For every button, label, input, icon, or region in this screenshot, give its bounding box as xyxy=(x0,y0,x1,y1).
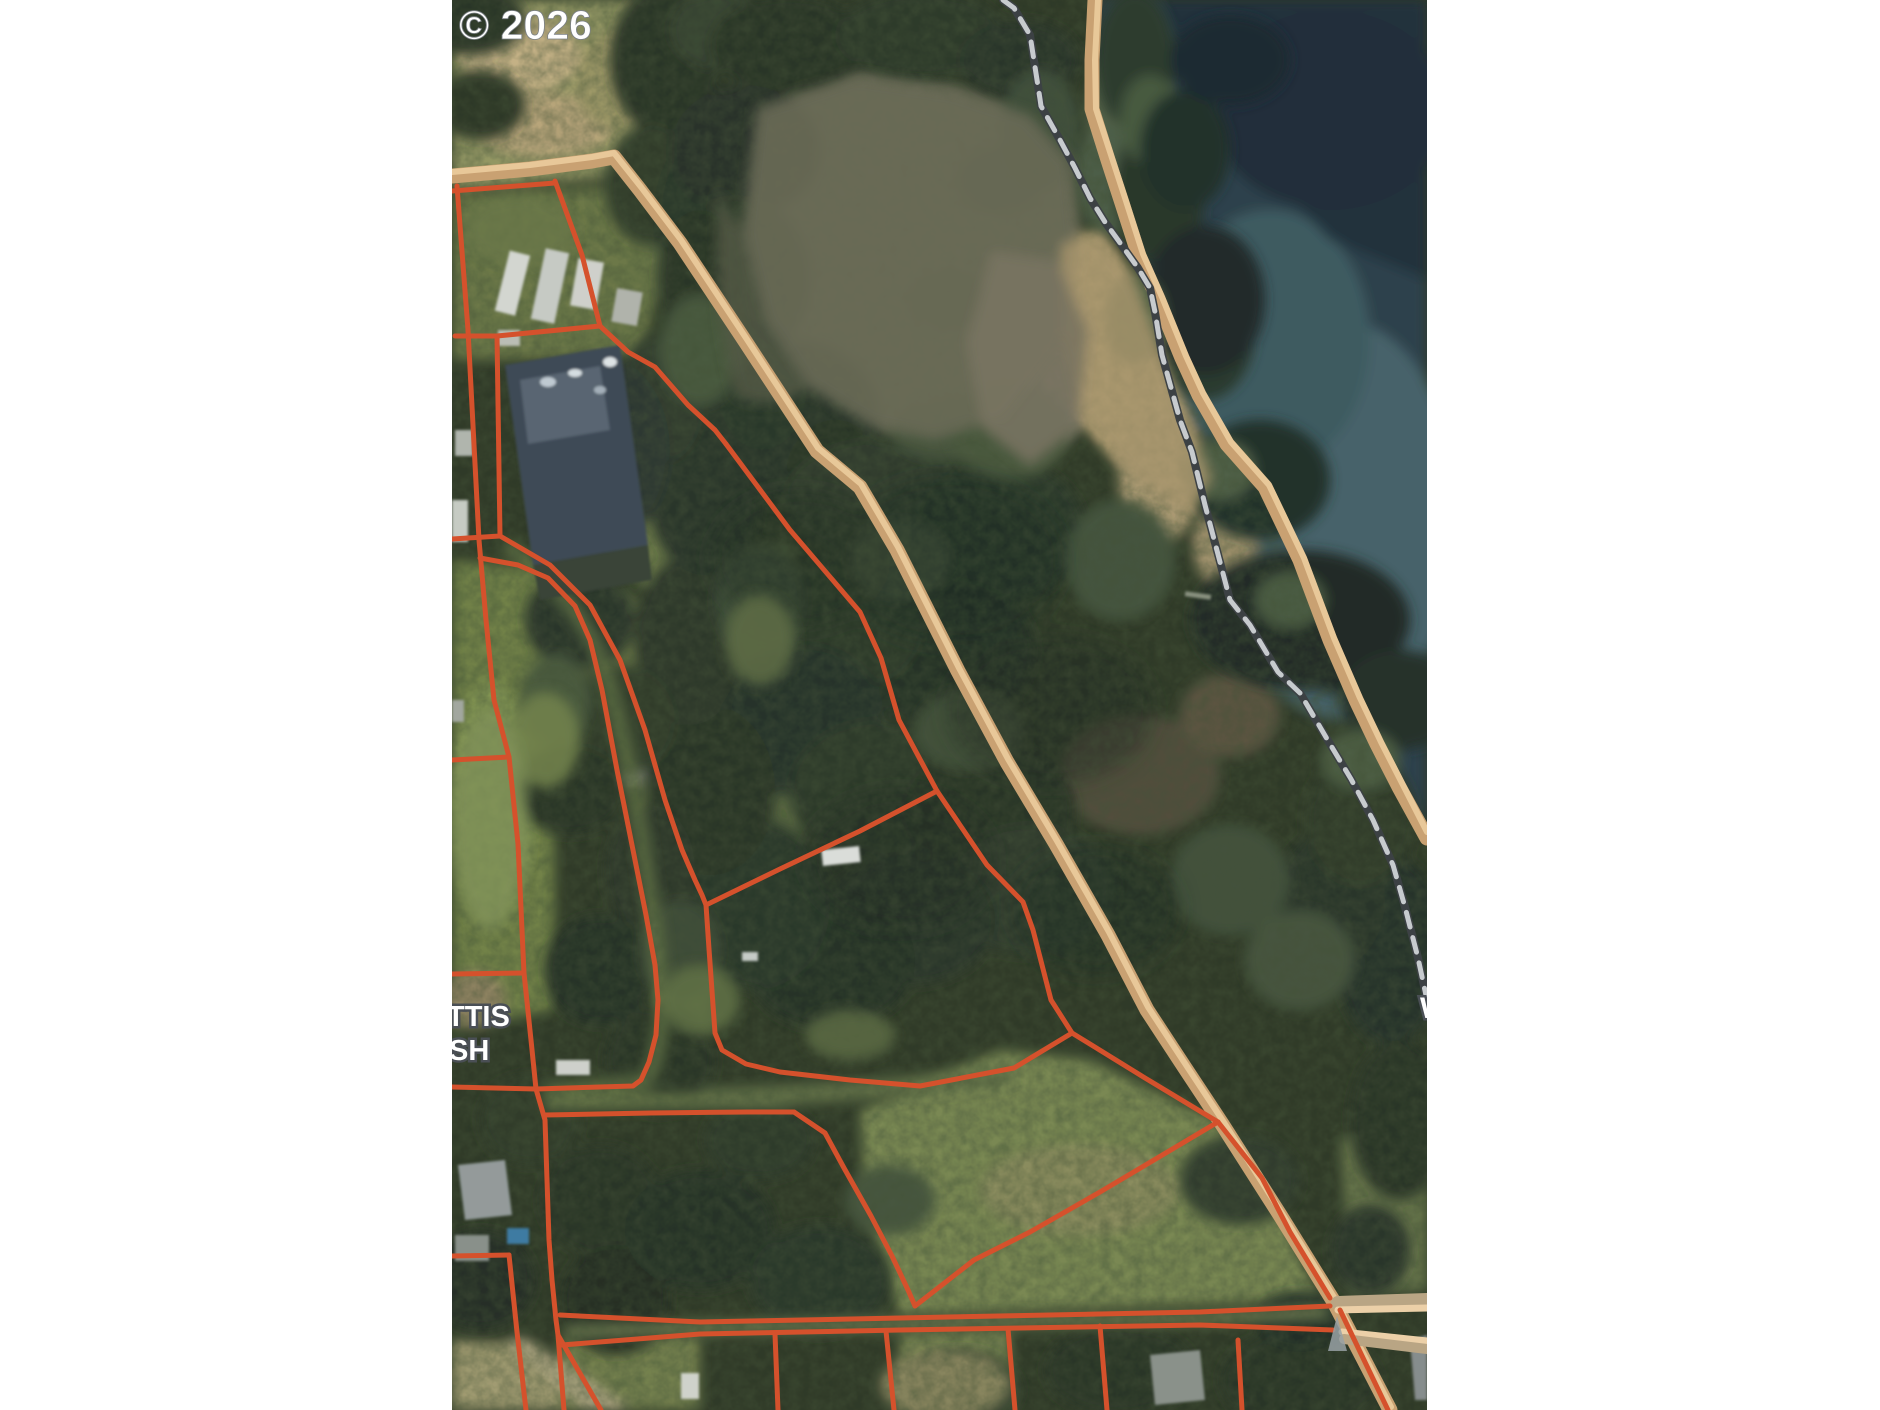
svg-text:© 2026: © 2026 xyxy=(459,2,592,48)
svg-text:SH: SH xyxy=(449,1035,489,1067)
svg-text:TTIS: TTIS xyxy=(447,1001,510,1033)
